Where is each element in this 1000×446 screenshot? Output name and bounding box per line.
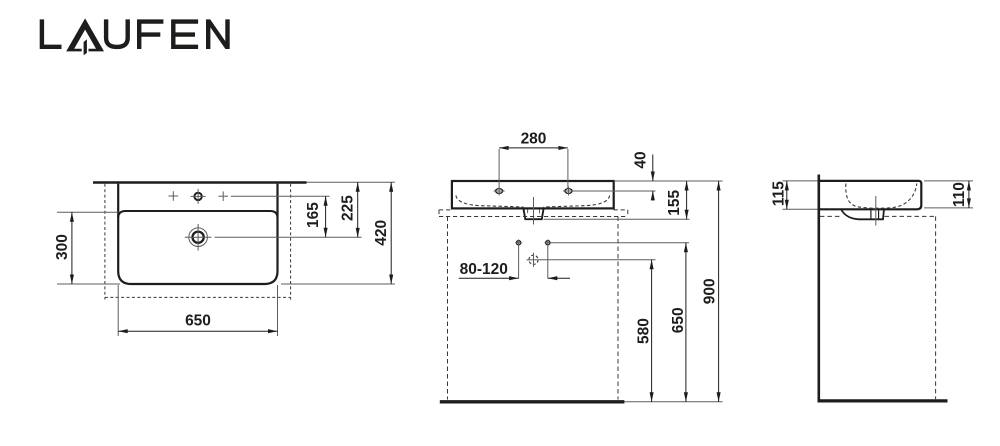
svg-text:165: 165 bbox=[305, 202, 322, 228]
svg-text:900: 900 bbox=[702, 278, 719, 304]
svg-text:155: 155 bbox=[666, 189, 683, 215]
svg-text:300: 300 bbox=[54, 234, 71, 260]
svg-text:40: 40 bbox=[632, 151, 649, 168]
svg-text:110: 110 bbox=[951, 182, 968, 207]
svg-text:115: 115 bbox=[770, 181, 787, 206]
svg-text:580: 580 bbox=[636, 318, 653, 344]
svg-text:225: 225 bbox=[339, 195, 356, 221]
svg-text:420: 420 bbox=[373, 220, 390, 246]
svg-text:280: 280 bbox=[521, 131, 547, 148]
svg-text:80-120: 80-120 bbox=[460, 261, 508, 278]
svg-text:650: 650 bbox=[185, 312, 211, 329]
svg-text:650: 650 bbox=[670, 307, 687, 333]
